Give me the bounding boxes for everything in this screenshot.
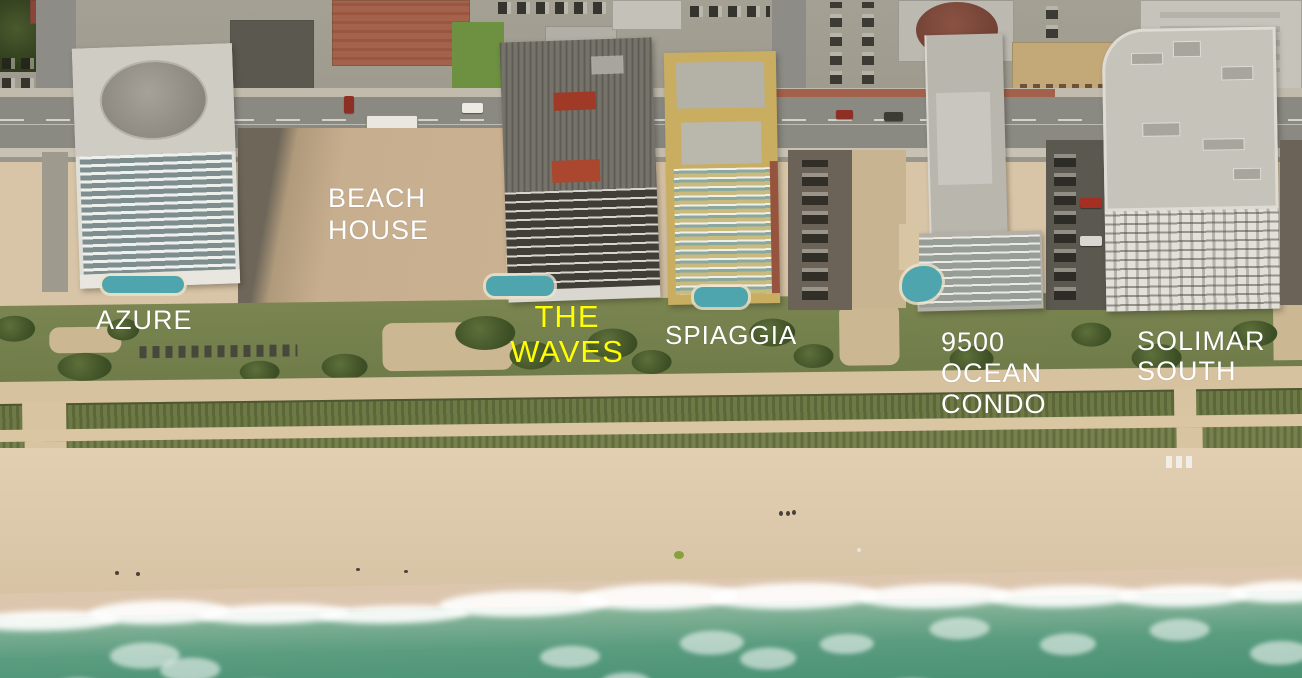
beach-person — [404, 570, 408, 573]
roof-equipment — [553, 91, 596, 110]
label-beach-house: BEACH HOUSE — [328, 182, 429, 246]
car — [1080, 198, 1102, 208]
label-spiaggia: SPIAGGIA — [665, 320, 797, 351]
car — [1080, 236, 1102, 246]
foam-patch — [160, 657, 220, 678]
car — [344, 96, 354, 113]
palm-tree — [793, 344, 833, 368]
label-the-waves: THE WAVES — [503, 299, 631, 369]
car — [836, 110, 853, 119]
spiaggia-facade — [674, 167, 772, 295]
beach-person — [779, 511, 783, 516]
roof-equipment — [1234, 169, 1260, 179]
beach-person — [792, 510, 796, 515]
beach-person — [115, 571, 119, 575]
brick-lot — [332, 0, 470, 66]
car — [462, 103, 483, 113]
palm-tree — [1071, 322, 1111, 346]
beach-person — [356, 568, 360, 571]
car — [884, 112, 903, 121]
solimar-building — [1102, 27, 1281, 312]
side-street — [36, 0, 76, 96]
azure-building — [72, 43, 240, 288]
roof-equipment — [552, 159, 601, 183]
spiaggia-building — [664, 51, 780, 305]
parking-column — [802, 160, 828, 300]
beach-person — [786, 511, 790, 516]
aerial-photo: AZURE BEACH HOUSE THE WAVES SPIAGGIA 950… — [0, 0, 1302, 678]
lounge-chairs — [1166, 456, 1196, 468]
spiaggia-roof-panel — [676, 61, 765, 109]
palm-tree — [0, 316, 35, 343]
spiaggia-roof-panel — [681, 121, 762, 164]
roof-equipment — [1203, 139, 1243, 150]
side-street — [772, 0, 806, 96]
label-ocean-condo: 9500 OCEAN CONDO — [941, 327, 1047, 420]
swimming-pool — [102, 276, 184, 293]
parking-column — [830, 2, 842, 84]
palm-tree — [631, 350, 671, 374]
beach-access-path — [1174, 387, 1196, 417]
sand-patch — [839, 303, 900, 366]
roof-equipment — [1222, 67, 1252, 80]
label-solimar-south: SOLIMAR SOUTH — [1137, 326, 1266, 386]
service-strip — [1280, 140, 1302, 305]
waves-building — [500, 37, 661, 302]
sunny-lot — [852, 150, 906, 308]
beach-person — [857, 548, 861, 552]
palm-tree — [321, 353, 367, 380]
beach-umbrella — [674, 551, 684, 559]
beach-loungers — [139, 344, 297, 358]
condo-roof-panel — [936, 92, 992, 185]
swimming-pool — [694, 287, 748, 307]
parking-row — [690, 6, 770, 17]
roof-equipment — [1174, 42, 1200, 56]
palm-tree — [57, 353, 111, 382]
roof-equipment — [1132, 53, 1162, 64]
shaded-parking-lot — [788, 150, 852, 310]
parking-column — [1054, 154, 1076, 300]
parking-column — [862, 2, 874, 84]
driveway — [42, 152, 68, 292]
parking-column — [1046, 2, 1058, 38]
building-roof — [612, 0, 682, 30]
swimming-pool — [486, 276, 554, 296]
beach-access-path — [22, 401, 66, 432]
spiaggia-side-wall — [770, 161, 780, 293]
garden-path — [899, 224, 919, 270]
roof-equipment — [592, 56, 623, 73]
label-azure: AZURE — [96, 305, 193, 336]
sand-patch — [1273, 300, 1302, 360]
building-roof — [230, 20, 314, 98]
roof-equipment — [1143, 123, 1179, 136]
azure-facade — [80, 151, 236, 274]
shaded-parking-lot — [1046, 140, 1108, 310]
beach-person — [136, 572, 140, 576]
solimar-facade — [1105, 208, 1281, 311]
